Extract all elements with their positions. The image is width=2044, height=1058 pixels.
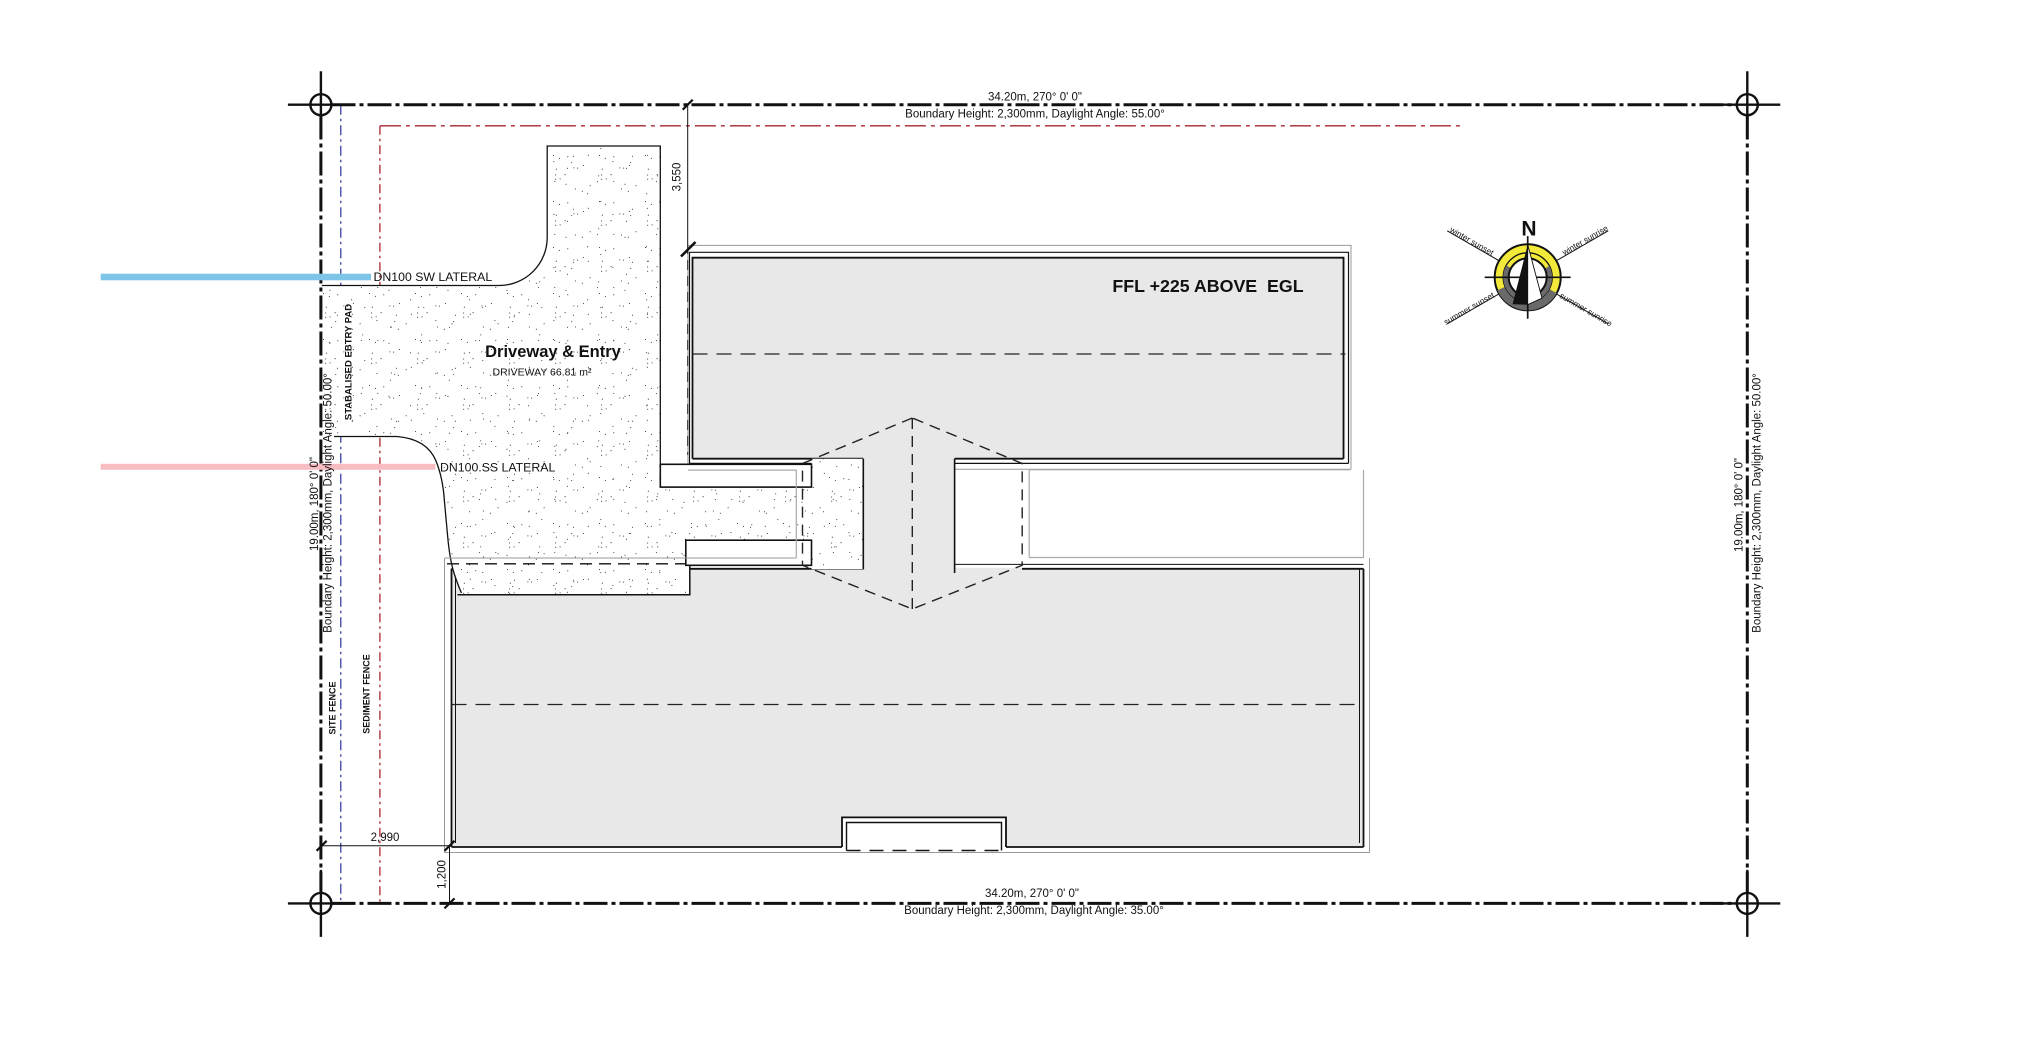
svg-text:Boundary Height: 2,300mm, Dayl: Boundary Height: 2,300mm, Daylight Angle… bbox=[1752, 373, 1764, 633]
svg-text:DN100.SS LATERAL: DN100.SS LATERAL bbox=[440, 461, 555, 475]
svg-text:SITE FENCE: SITE FENCE bbox=[328, 681, 338, 734]
svg-text:19.00m, 180° 0' 0": 19.00m, 180° 0' 0" bbox=[1734, 458, 1746, 552]
svg-text:N: N bbox=[1521, 218, 1536, 241]
svg-text:Boundary Height: 2,300mm, Dayl: Boundary Height: 2,300mm, Daylight Angle… bbox=[323, 373, 335, 633]
svg-text:19.00m, 180° 0' 0": 19.00m, 180° 0' 0" bbox=[309, 457, 321, 551]
svg-text:SEDIMENT FENCE: SEDIMENT FENCE bbox=[362, 654, 372, 734]
svg-text:3,550: 3,550 bbox=[672, 163, 684, 192]
svg-text:Boundary Height: 2,300mm, Dayl: Boundary Height: 2,300mm, Daylight Angle… bbox=[904, 905, 1164, 917]
svg-text:2,990: 2,990 bbox=[371, 832, 400, 844]
svg-text:1,200: 1,200 bbox=[437, 860, 449, 889]
svg-text:DN100 SW LATERAL: DN100 SW LATERAL bbox=[374, 270, 493, 284]
svg-text:FFL +225 ABOVE EGL: FFL +225 ABOVE EGL bbox=[1112, 276, 1303, 296]
svg-text:DRIVEWAY 66.81 m²: DRIVEWAY 66.81 m² bbox=[492, 367, 592, 379]
svg-text:Boundary Height: 2,300mm, Dayl: Boundary Height: 2,300mm, Daylight Angle… bbox=[905, 109, 1165, 121]
svg-text:STABALISED EBTRY PAD: STABALISED EBTRY PAD bbox=[344, 304, 355, 420]
svg-text:Driveway & Entry: Driveway & Entry bbox=[485, 343, 622, 361]
svg-text:34.20m, 270° 0' 0": 34.20m, 270° 0' 0" bbox=[985, 888, 1079, 900]
svg-text:34.20m, 270° 0' 0": 34.20m, 270° 0' 0" bbox=[988, 92, 1082, 104]
